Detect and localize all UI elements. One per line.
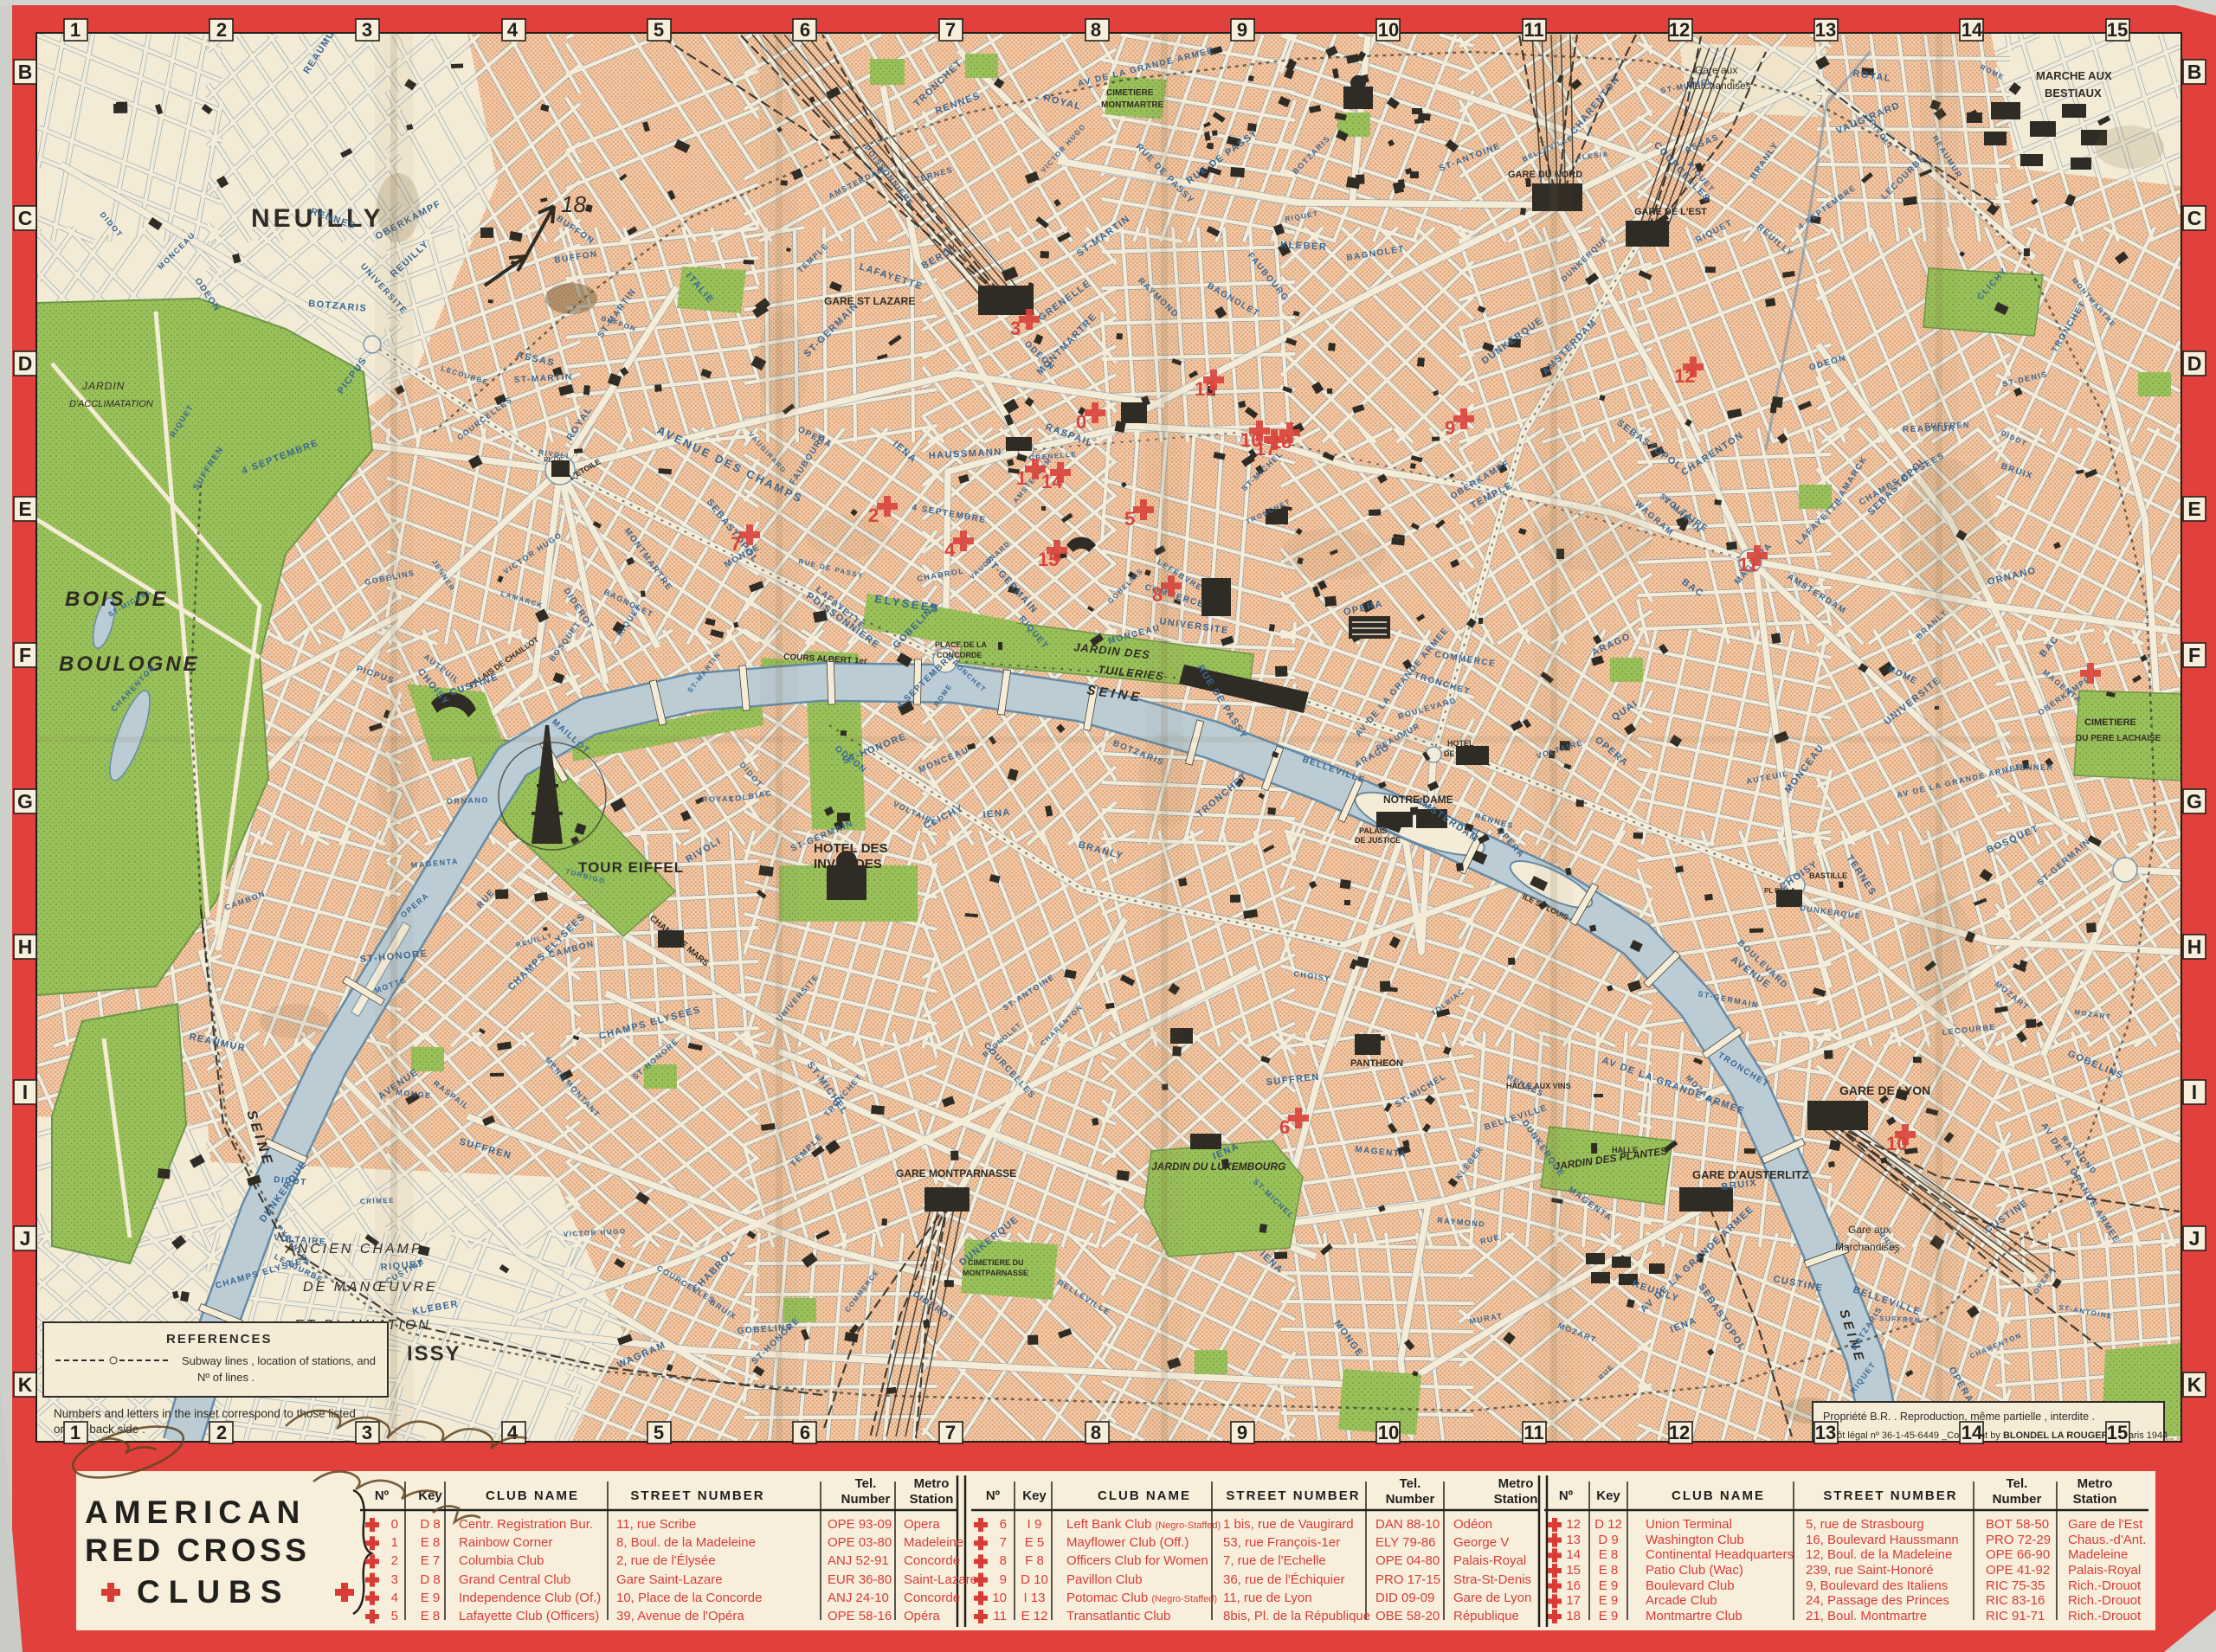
svg-text:9, Boulevard des Italiens: 9, Boulevard des Italiens (1806, 1578, 1948, 1593)
svg-text:11: 11 (1523, 19, 1543, 41)
svg-text:1: 1 (70, 19, 81, 41)
svg-text:Patio Club (Wac): Patio Club (Wac) (1646, 1563, 1743, 1578)
svg-text:E 5: E 5 (1025, 1535, 1045, 1550)
svg-text:Odéon: Odéon (1453, 1517, 1492, 1532)
svg-text:J: J (20, 1227, 31, 1250)
svg-text:15: 15 (1566, 1563, 1581, 1578)
svg-text:13: 13 (1815, 1422, 1836, 1443)
svg-text:D: D (2187, 352, 2202, 375)
svg-text:8: 8 (1091, 1422, 1101, 1443)
svg-text:Continental Headquarters: Continental Headquarters (1646, 1547, 1794, 1562)
svg-text:Palais-Royal: Palais-Royal (1453, 1553, 1526, 1568)
svg-text:G: G (17, 790, 33, 813)
svg-text:Number: Number (841, 1492, 891, 1507)
svg-text:Metro: Metro (2077, 1476, 2113, 1491)
svg-text:Gare de l'Est: Gare de l'Est (2068, 1517, 2143, 1532)
svg-text:6: 6 (800, 1422, 810, 1443)
svg-text:39, Avenue de l'Opéra: 39, Avenue de l'Opéra (616, 1609, 744, 1623)
svg-text:Concorde: Concorde (904, 1553, 960, 1568)
svg-text:CLUB NAME: CLUB NAME (486, 1488, 579, 1503)
svg-text:E: E (2187, 498, 2200, 520)
svg-text:D 10: D 10 (1021, 1572, 1048, 1587)
svg-text:ANJ 52-91: ANJ 52-91 (828, 1553, 889, 1568)
svg-text:Opéra: Opéra (904, 1609, 940, 1623)
svg-text:E 12: E 12 (1021, 1609, 1048, 1623)
svg-text:RED CROSS: RED CROSS (85, 1533, 310, 1568)
svg-text:ELY 79-86: ELY 79-86 (1375, 1535, 1436, 1550)
svg-text:Gare Saint-Lazare: Gare Saint-Lazare (616, 1572, 723, 1587)
svg-text:Union Terminal: Union Terminal (1646, 1517, 1732, 1532)
svg-text:EUR 36-80: EUR 36-80 (828, 1572, 892, 1587)
svg-text:STREET NUMBER: STREET NUMBER (1823, 1488, 1957, 1503)
svg-text:E 9: E 9 (1599, 1609, 1619, 1623)
svg-text:Opera: Opera (904, 1517, 940, 1532)
svg-text:E 9: E 9 (1599, 1593, 1619, 1608)
svg-text:Rich.-Drouot: Rich.-Drouot (2068, 1578, 2142, 1593)
svg-text:D 8: D 8 (420, 1572, 440, 1587)
svg-text:J: J (2189, 1227, 2200, 1250)
svg-text:6: 6 (1000, 1517, 1007, 1532)
svg-text:15: 15 (2107, 19, 2128, 41)
svg-text:6: 6 (800, 19, 810, 41)
svg-text:STREET NUMBER: STREET NUMBER (630, 1488, 764, 1503)
svg-text:5: 5 (654, 19, 664, 41)
svg-text:239, rue Saint-Honoré: 239, rue Saint-Honoré (1806, 1563, 1934, 1578)
svg-text:DAN 88-10: DAN 88-10 (1375, 1517, 1440, 1532)
svg-text:Chaus.-d'Ant.: Chaus.-d'Ant. (2068, 1533, 2146, 1547)
svg-text:E 7: E 7 (421, 1553, 441, 1568)
svg-text:Centr. Registration Bur.: Centr. Registration Bur. (459, 1517, 593, 1532)
svg-text:AMERICAN: AMERICAN (85, 1495, 306, 1530)
svg-text:Nº: Nº (375, 1488, 390, 1503)
svg-text:Tel.: Tel. (855, 1476, 877, 1491)
svg-text:BOT 58-50: BOT 58-50 (1986, 1517, 2049, 1532)
svg-text:D: D (18, 352, 33, 375)
svg-text:République: République (1453, 1609, 1519, 1623)
svg-text:I 13: I 13 (1023, 1591, 1045, 1605)
svg-text:10: 10 (1378, 19, 1399, 41)
svg-text:Mayflower Club (Off.): Mayflower Club (Off.) (1066, 1535, 1189, 1550)
svg-text:Nº: Nº (986, 1488, 1001, 1503)
svg-text:B: B (18, 61, 33, 83)
svg-text:9: 9 (1237, 19, 1247, 41)
svg-text:2: 2 (216, 1422, 227, 1443)
svg-text:13: 13 (1815, 19, 1836, 41)
svg-text:H: H (2187, 935, 2202, 958)
svg-text:E 9: E 9 (421, 1591, 441, 1605)
svg-text:CLUB NAME: CLUB NAME (1672, 1488, 1765, 1503)
svg-text:Madeleine: Madeleine (2068, 1547, 2128, 1562)
svg-text:OPE 58-16: OPE 58-16 (828, 1609, 892, 1623)
svg-text:B: B (2187, 61, 2202, 83)
svg-text:8: 8 (1091, 19, 1101, 41)
svg-text:STREET NUMBER: STREET NUMBER (1226, 1488, 1360, 1503)
svg-text:Officers Club for Women: Officers Club for Women (1066, 1553, 1208, 1568)
svg-text:Grand Central Club: Grand Central Club (459, 1572, 570, 1587)
svg-text:8: 8 (1000, 1553, 1007, 1568)
svg-text:K: K (2187, 1373, 2202, 1396)
svg-text:E: E (18, 498, 31, 520)
svg-text:7, rue de l'Echelle: 7, rue de l'Echelle (1223, 1553, 1326, 1568)
svg-text:OPE 04-80: OPE 04-80 (1375, 1553, 1440, 1568)
svg-text:George V: George V (1453, 1535, 1509, 1550)
svg-text:OPE 41-92: OPE 41-92 (1986, 1563, 2050, 1578)
svg-text:DID 09-09: DID 09-09 (1375, 1591, 1434, 1605)
svg-text:21, Boul. Montmartre: 21, Boul. Montmartre (1806, 1609, 1927, 1623)
svg-text:Station: Station (910, 1492, 954, 1507)
svg-text:I: I (2192, 1081, 2197, 1103)
svg-text:Transatlantic Club: Transatlantic Club (1066, 1609, 1170, 1623)
svg-text:OBE 58-20: OBE 58-20 (1375, 1609, 1440, 1623)
svg-text:Washington Club: Washington Club (1646, 1533, 1744, 1547)
svg-text:16: 16 (1566, 1578, 1581, 1593)
svg-text:2, rue de l'Élysée: 2, rue de l'Élysée (616, 1553, 716, 1568)
svg-text:OPE 03-80: OPE 03-80 (828, 1535, 892, 1550)
svg-text:Number: Number (1386, 1492, 1435, 1507)
svg-text:4: 4 (391, 1591, 398, 1605)
svg-text:Metro: Metro (1498, 1476, 1534, 1491)
svg-text:5: 5 (654, 1422, 664, 1443)
svg-text:9: 9 (1237, 1422, 1247, 1443)
svg-text:ANJ 24-10: ANJ 24-10 (828, 1591, 889, 1605)
svg-text:Nº: Nº (1559, 1488, 1574, 1503)
svg-text:53, rue François-1er: 53, rue François-1er (1223, 1535, 1340, 1550)
svg-text:D 8: D 8 (420, 1517, 440, 1532)
svg-text:F: F (2188, 644, 2200, 666)
svg-text:12, Boul. de la Madeleine: 12, Boul. de la Madeleine (1806, 1547, 1952, 1562)
svg-text:2: 2 (216, 19, 227, 41)
svg-text:Concorde: Concorde (904, 1591, 960, 1605)
svg-text:16, Boulevard Haussmann: 16, Boulevard Haussmann (1806, 1533, 1959, 1547)
svg-text:7: 7 (1000, 1535, 1007, 1550)
svg-text:F: F (19, 644, 31, 666)
svg-text:E 8: E 8 (1599, 1547, 1619, 1562)
svg-text:E 8: E 8 (421, 1609, 441, 1623)
svg-text:RIC 75-35: RIC 75-35 (1986, 1578, 2045, 1593)
svg-text:11: 11 (993, 1609, 1007, 1623)
svg-text:E 9: E 9 (1599, 1578, 1619, 1593)
svg-text:0: 0 (391, 1517, 398, 1532)
svg-text:Arcade Club: Arcade Club (1646, 1593, 1717, 1608)
svg-text:Metro: Metro (914, 1476, 950, 1491)
svg-text:RIC 83-16: RIC 83-16 (1986, 1593, 2045, 1608)
svg-text:15: 15 (2107, 1422, 2128, 1443)
svg-text:11: 11 (1523, 1422, 1543, 1443)
svg-text:1 bis, rue de Vaugirard: 1 bis, rue de Vaugirard (1223, 1517, 1354, 1532)
svg-text:Number: Number (1993, 1492, 2042, 1507)
svg-text:14: 14 (1962, 19, 1983, 41)
svg-text:D 12: D 12 (1594, 1517, 1622, 1532)
svg-text:7: 7 (945, 1422, 956, 1443)
svg-text:G: G (2187, 790, 2202, 813)
svg-text:Montmartre Club: Montmartre Club (1646, 1609, 1743, 1623)
svg-text:1: 1 (70, 1422, 81, 1443)
svg-text:OPE 66-90: OPE 66-90 (1986, 1547, 2050, 1562)
svg-text:1: 1 (391, 1535, 398, 1550)
svg-text:Tel.: Tel. (2007, 1476, 2028, 1491)
svg-text:Key: Key (1596, 1488, 1620, 1503)
svg-text:Boulevard Club: Boulevard Club (1646, 1578, 1735, 1593)
svg-text:PRO 17-15: PRO 17-15 (1375, 1572, 1440, 1587)
svg-text:Gare de Lyon: Gare de Lyon (1453, 1591, 1531, 1605)
svg-text:5: 5 (391, 1609, 398, 1623)
svg-text:2: 2 (391, 1553, 398, 1568)
svg-text:Madeleine: Madeleine (904, 1535, 963, 1550)
svg-text:10: 10 (992, 1591, 1007, 1605)
svg-text:Rich.-Drouot: Rich.-Drouot (2068, 1593, 2142, 1608)
svg-text:OPE 93-09: OPE 93-09 (828, 1517, 892, 1532)
svg-text:12: 12 (1669, 1422, 1690, 1443)
svg-text:24, Passage des Princes: 24, Passage des Princes (1806, 1593, 1949, 1608)
svg-text:K: K (18, 1373, 33, 1396)
svg-text:36, rue de l'Échiquier: 36, rue de l'Échiquier (1223, 1572, 1344, 1587)
svg-text:Station: Station (1494, 1492, 1538, 1507)
svg-text:10: 10 (1378, 1422, 1399, 1443)
svg-text:13: 13 (1566, 1533, 1581, 1547)
svg-text:11, rue Scribe: 11, rue Scribe (616, 1517, 696, 1532)
svg-text:8bis, Pl. de la République: 8bis, Pl. de la République (1223, 1609, 1370, 1623)
svg-text:18: 18 (1566, 1609, 1581, 1623)
svg-text:9: 9 (1000, 1572, 1007, 1587)
svg-text:I 9: I 9 (1027, 1517, 1042, 1532)
svg-text:Station: Station (2073, 1492, 2117, 1507)
svg-text:Palais-Royal: Palais-Royal (2068, 1563, 2141, 1578)
svg-text:8, Boul. de la Madeleine: 8, Boul. de la Madeleine (616, 1535, 756, 1550)
svg-text:10, Place de la Concorde: 10, Place de la Concorde (616, 1591, 762, 1605)
svg-text:RIC 91-71: RIC 91-71 (1986, 1609, 2045, 1623)
svg-text:I: I (23, 1081, 28, 1103)
svg-text:Pavillon Club: Pavillon Club (1066, 1572, 1143, 1587)
svg-text:Saint-Lazare: Saint-Lazare (904, 1572, 977, 1587)
svg-text:4: 4 (507, 1422, 519, 1443)
svg-text:E 8: E 8 (421, 1535, 441, 1550)
svg-text:3: 3 (391, 1572, 398, 1587)
svg-text:H: H (18, 935, 33, 958)
svg-text:12: 12 (1669, 19, 1690, 41)
svg-text:14: 14 (1566, 1547, 1581, 1562)
svg-text:17: 17 (1566, 1593, 1581, 1608)
svg-text:4: 4 (507, 19, 519, 41)
svg-text:C: C (2187, 207, 2202, 229)
svg-text:Rich.-Drouot: Rich.-Drouot (2068, 1609, 2142, 1623)
svg-text:E 8: E 8 (1599, 1563, 1619, 1578)
svg-text:D 9: D 9 (1598, 1533, 1618, 1547)
svg-text:3: 3 (362, 1422, 372, 1443)
svg-text:12: 12 (1566, 1517, 1581, 1532)
svg-text:CLUB NAME: CLUB NAME (1098, 1488, 1191, 1503)
svg-text:Tel.: Tel. (1400, 1476, 1421, 1491)
svg-text:Rainbow Corner: Rainbow Corner (459, 1535, 552, 1550)
svg-text:7: 7 (945, 19, 956, 41)
svg-text:11, rue de Lyon: 11, rue de Lyon (1223, 1591, 1312, 1605)
svg-text:CLUBS: CLUBS (137, 1574, 290, 1610)
svg-text:C: C (18, 207, 33, 229)
svg-text:3: 3 (362, 19, 372, 41)
svg-text:Columbia Club: Columbia Club (459, 1553, 544, 1568)
svg-text:Independence Club (Of.): Independence Club (Of.) (459, 1591, 601, 1605)
svg-text:PRO 72-29: PRO 72-29 (1986, 1533, 2051, 1547)
svg-text:Lafayette Club (Officers): Lafayette Club (Officers) (459, 1609, 599, 1623)
svg-text:F 8: F 8 (1025, 1553, 1044, 1568)
svg-text:Stra-St-Denis: Stra-St-Denis (1453, 1572, 1531, 1587)
svg-text:Key: Key (1022, 1488, 1047, 1503)
svg-text:5, rue de Strasbourg: 5, rue de Strasbourg (1806, 1517, 1924, 1532)
svg-text:14: 14 (1962, 1422, 1983, 1443)
